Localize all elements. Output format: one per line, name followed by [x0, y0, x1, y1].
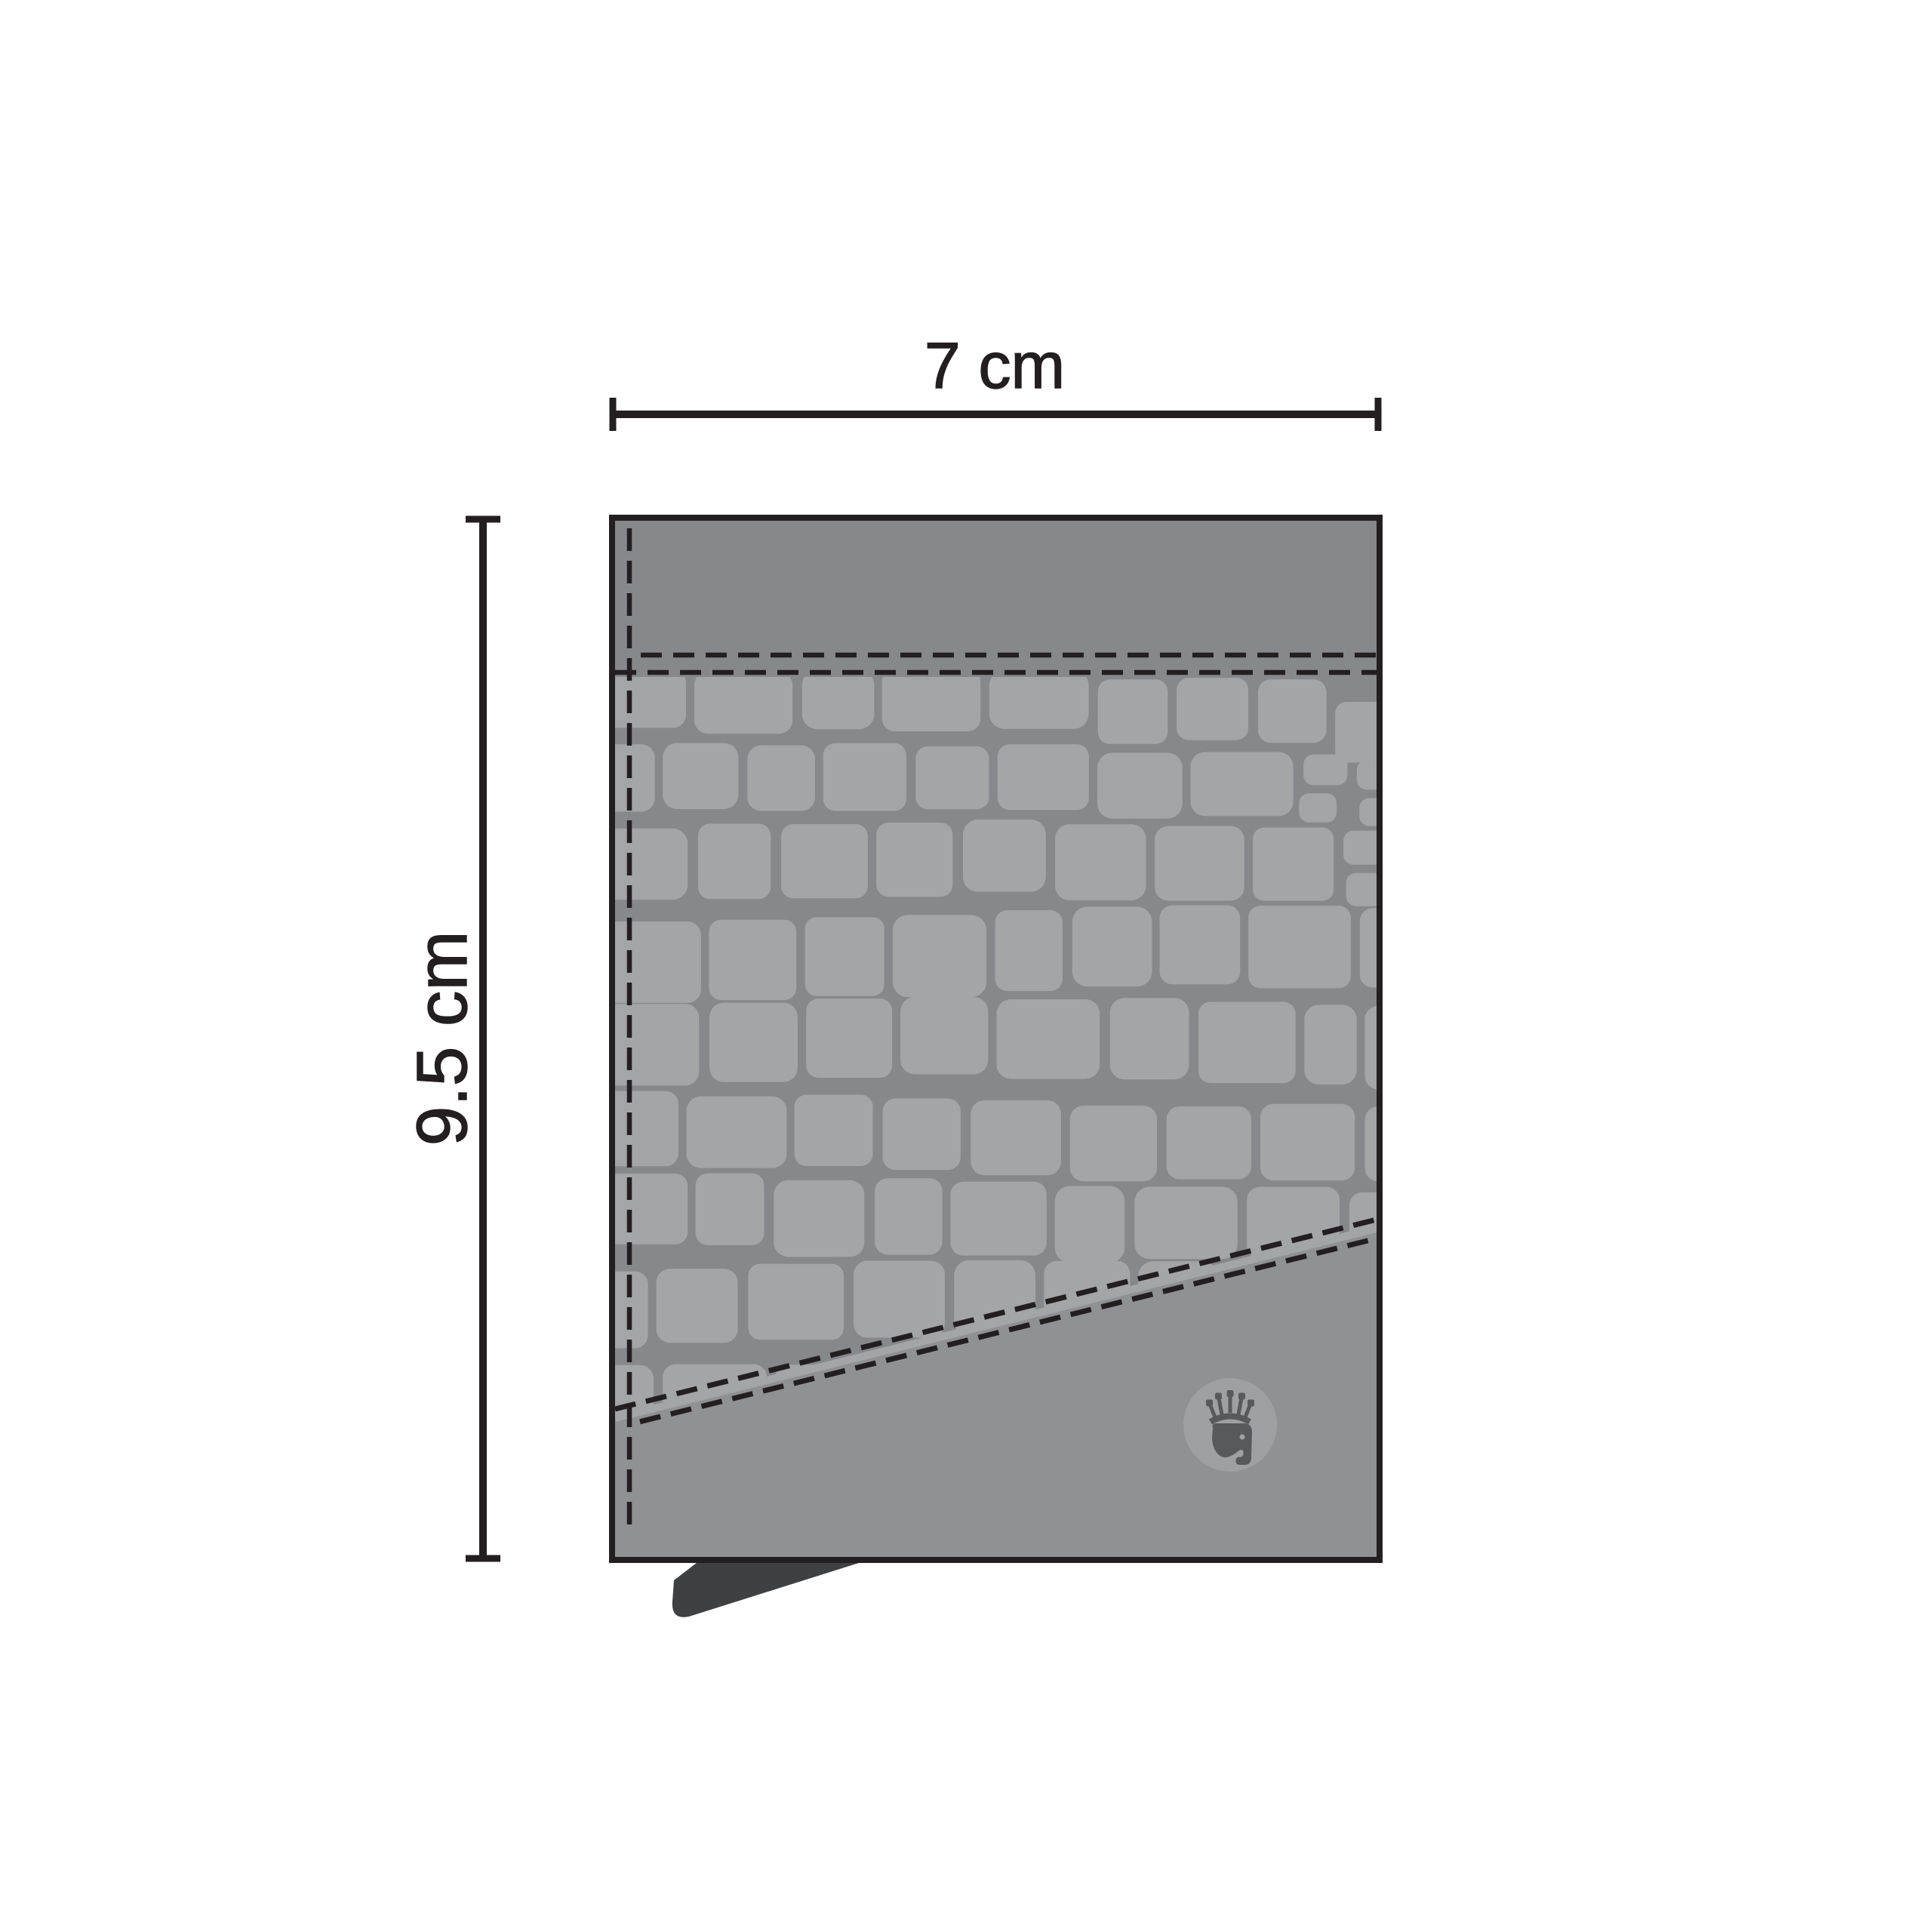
svg-text:7 cm: 7 cm	[924, 330, 1065, 402]
svg-text:9.5 cm: 9.5 cm	[402, 931, 482, 1146]
